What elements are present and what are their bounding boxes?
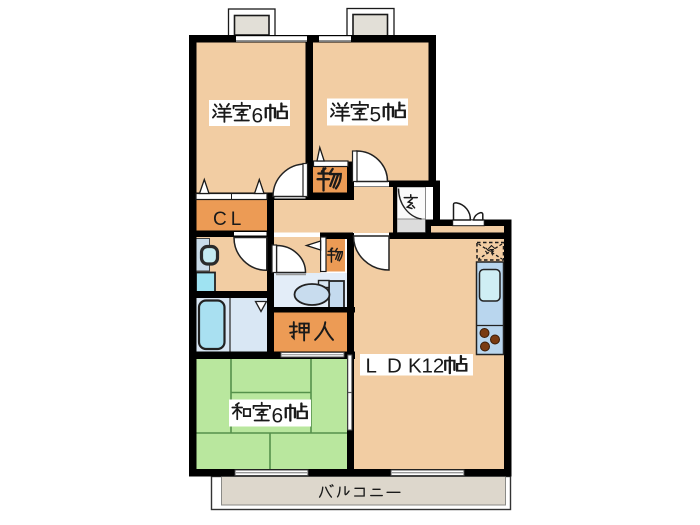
- svg-text:CL: CL: [213, 209, 245, 230]
- svg-text:K: K: [408, 355, 422, 378]
- svg-text:L: L: [366, 355, 377, 378]
- svg-text:5: 5: [370, 104, 382, 127]
- svg-text:6: 6: [272, 405, 284, 428]
- svg-text:12: 12: [422, 355, 445, 378]
- svg-text:6: 6: [252, 105, 264, 128]
- svg-text:D: D: [387, 355, 402, 378]
